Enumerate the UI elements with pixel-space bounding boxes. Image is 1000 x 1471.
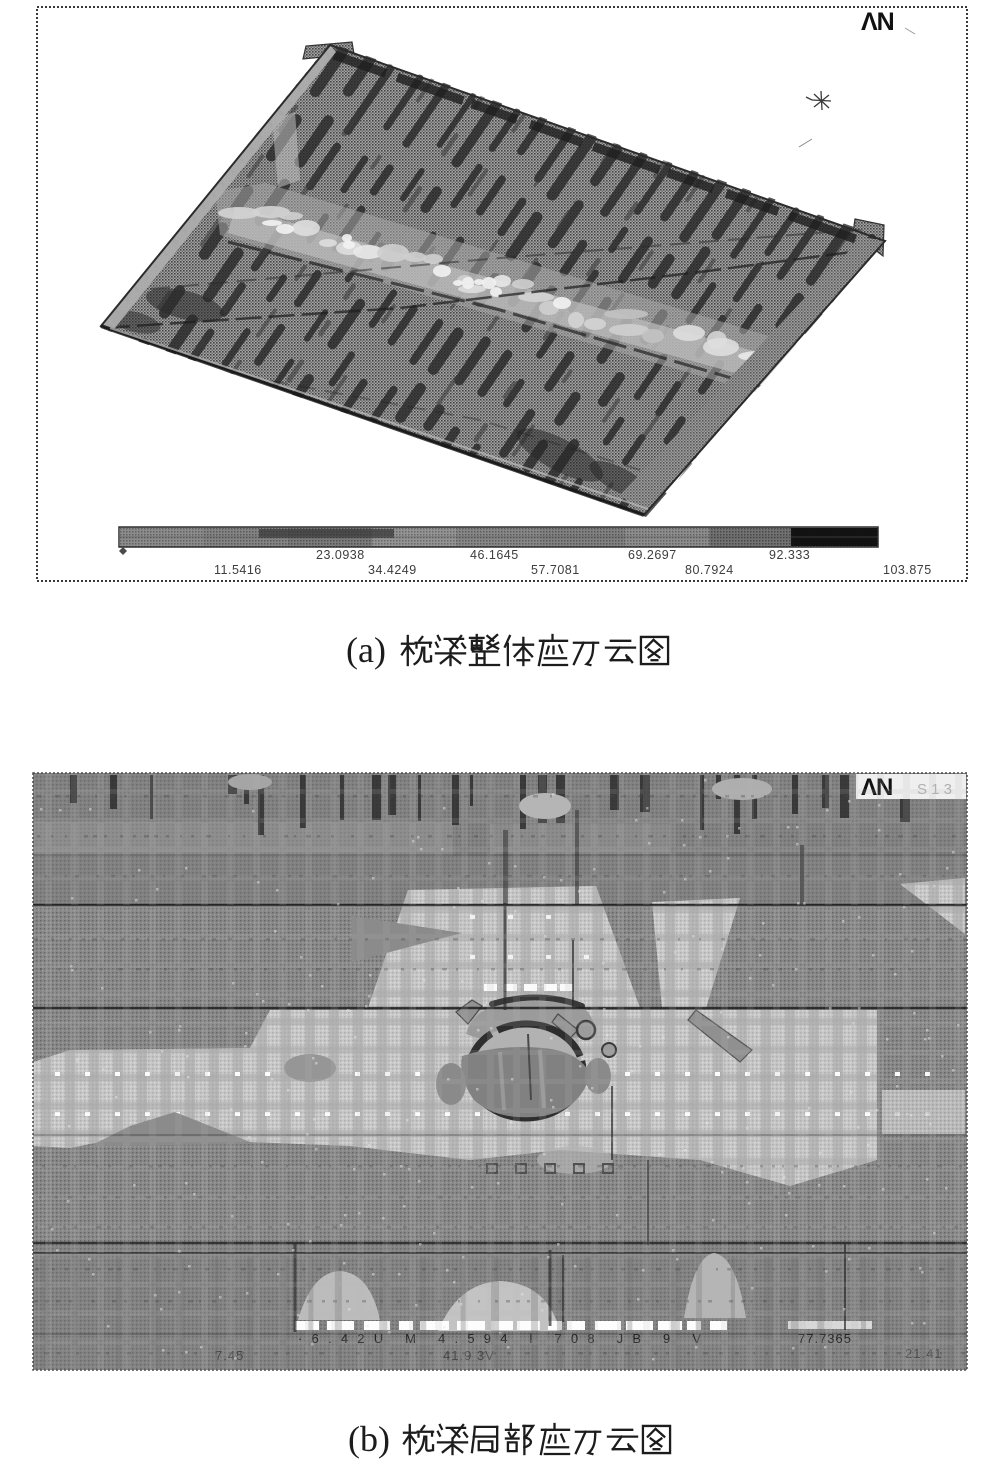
svg-text:ΛN: ΛN [861, 8, 894, 36]
svg-text:69.2697: 69.2697 [628, 548, 677, 562]
svg-text:ΛN: ΛN [861, 774, 892, 801]
svg-text:103.875: 103.875 [883, 563, 932, 577]
svg-text:57.7081: 57.7081 [531, 563, 580, 577]
svg-text:34.4249: 34.4249 [368, 563, 417, 577]
svg-text:23.0938: 23.0938 [316, 548, 365, 562]
svg-text:92.333: 92.333 [769, 548, 810, 562]
svg-text:(b): (b) [348, 1419, 390, 1459]
svg-text:11.5416: 11.5416 [214, 563, 262, 577]
svg-text:(a): (a) [346, 630, 386, 670]
svg-text:46.1645: 46.1645 [470, 548, 519, 562]
svg-text:80.7924: 80.7924 [685, 563, 734, 577]
